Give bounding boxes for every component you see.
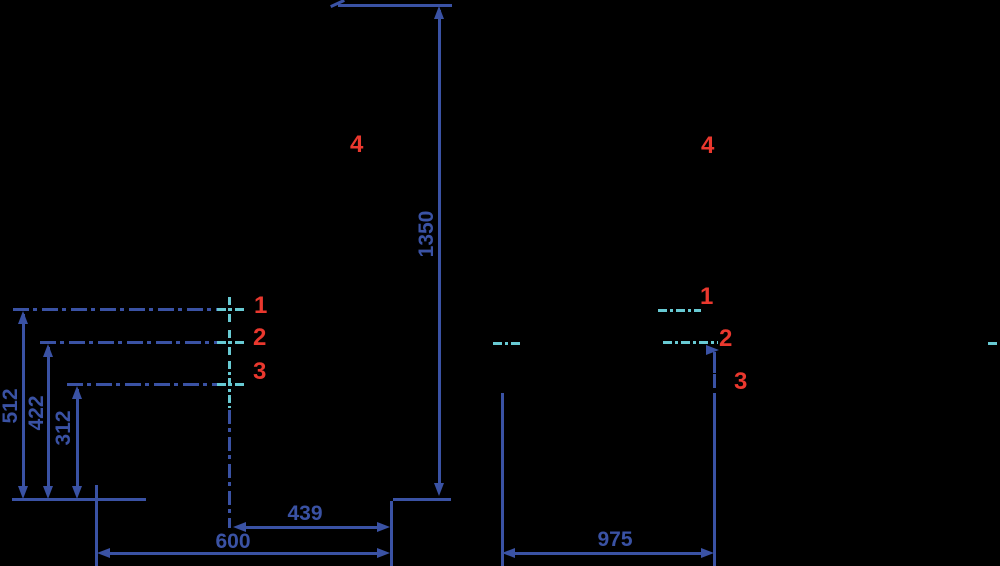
centerline-3-cross-v <box>228 361 231 408</box>
dim-512-text: 512 <box>1 366 21 446</box>
centerline-1-cross-v <box>228 297 231 324</box>
dim-975-arrow-right-icon <box>701 548 714 558</box>
centerline-2-cross-v <box>228 330 231 357</box>
point-label-4-left: 4 <box>350 132 363 158</box>
point-label-1-right: 1 <box>700 284 713 310</box>
centerline-2-right-segment <box>663 341 718 344</box>
reference-line-lower <box>713 393 716 566</box>
floor-line-left <box>12 498 146 501</box>
dim-439-line <box>244 526 379 529</box>
dim-1350-arrow-down-icon <box>434 483 444 496</box>
reference-line-upper <box>713 352 716 373</box>
centerline-2-right-edge-segment <box>988 342 1000 345</box>
floor-line-right <box>393 498 451 501</box>
centerline-2 <box>40 341 217 344</box>
dim-1350-text: 1350 <box>417 194 437 274</box>
centerline-1 <box>13 308 217 311</box>
technical-drawing-canvas: 1350 4 1 2 3 512 422 312 439 600 4 <box>0 0 1000 566</box>
centerline-3-vertical-extension <box>228 410 231 528</box>
dim-439-arrow-right-icon <box>377 522 390 532</box>
centerline-2-right-left-segment <box>493 342 521 345</box>
centerline-1-right <box>658 309 701 312</box>
point-label-2-right: 2 <box>719 326 732 352</box>
dim-600-text: 600 <box>193 532 273 552</box>
dim-975-line <box>513 552 702 555</box>
right-extension-line <box>390 501 393 566</box>
dim-312-text: 312 <box>54 388 74 468</box>
reference-line-dashed-gap <box>713 374 716 392</box>
dim-975-extension-left <box>501 393 504 566</box>
point-label-4-right: 4 <box>701 133 714 159</box>
dim-422-text: 422 <box>27 373 47 453</box>
point-label-3-left: 3 <box>253 359 266 385</box>
dim-975-text: 975 <box>575 530 655 550</box>
dim-1350-line <box>438 10 441 484</box>
point-label-3-right: 3 <box>734 369 747 395</box>
dim-600-arrow-right-icon <box>377 548 390 558</box>
point-label-1-left: 1 <box>254 293 267 319</box>
dim-312-line <box>76 389 79 486</box>
centerline-3 <box>67 383 217 386</box>
dim-439-text: 439 <box>265 504 345 524</box>
point-label-2-left: 2 <box>253 325 266 351</box>
